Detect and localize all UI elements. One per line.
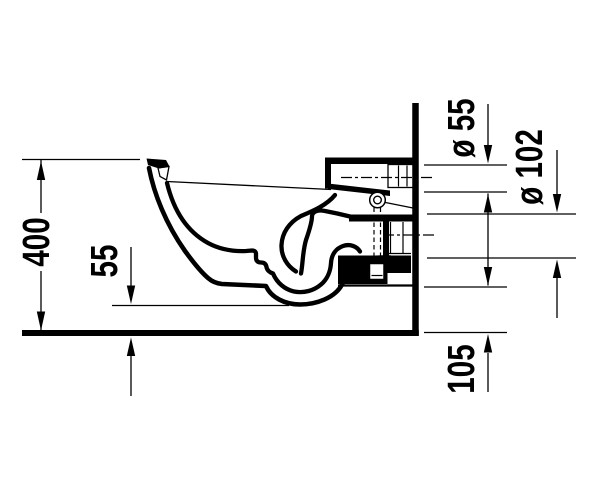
arrow-down bbox=[127, 286, 135, 305]
rim-section bbox=[158, 167, 169, 181]
dimension-55: 55 bbox=[84, 245, 289, 396]
arrow-down bbox=[484, 267, 492, 286]
outlet-left-bar bbox=[383, 217, 389, 258]
arrow-up bbox=[37, 161, 45, 180]
dim-label-105: 105 bbox=[441, 344, 483, 393]
dim-label-o102: ø 102 bbox=[509, 129, 551, 205]
dim-label-400: 400 bbox=[16, 217, 58, 266]
technical-drawing-page: 400 55 ø 55 ø 102 105 bbox=[0, 0, 600, 501]
arrow-down bbox=[37, 312, 45, 331]
arrow-up bbox=[484, 194, 492, 213]
arrow-up bbox=[127, 338, 135, 357]
fixing-to-wall-line bbox=[386, 203, 414, 209]
arrow-down bbox=[484, 145, 492, 164]
arrow-down bbox=[553, 194, 561, 213]
dim-label-o55: ø 55 bbox=[441, 98, 483, 157]
rear-top-bar bbox=[327, 158, 418, 165]
flush-pipe bbox=[388, 165, 414, 188]
fixing-circle-outer bbox=[370, 192, 386, 208]
arrow-up bbox=[484, 334, 492, 353]
seat-line bbox=[167, 182, 331, 190]
technical-drawing: 400 55 ø 55 ø 102 105 bbox=[0, 0, 600, 501]
dim-label-55: 55 bbox=[84, 245, 126, 278]
dimension-105: 105 bbox=[424, 267, 507, 394]
toilet-profile bbox=[147, 158, 435, 305]
arrow-up bbox=[553, 260, 561, 279]
bolt-foot bbox=[370, 264, 385, 280]
